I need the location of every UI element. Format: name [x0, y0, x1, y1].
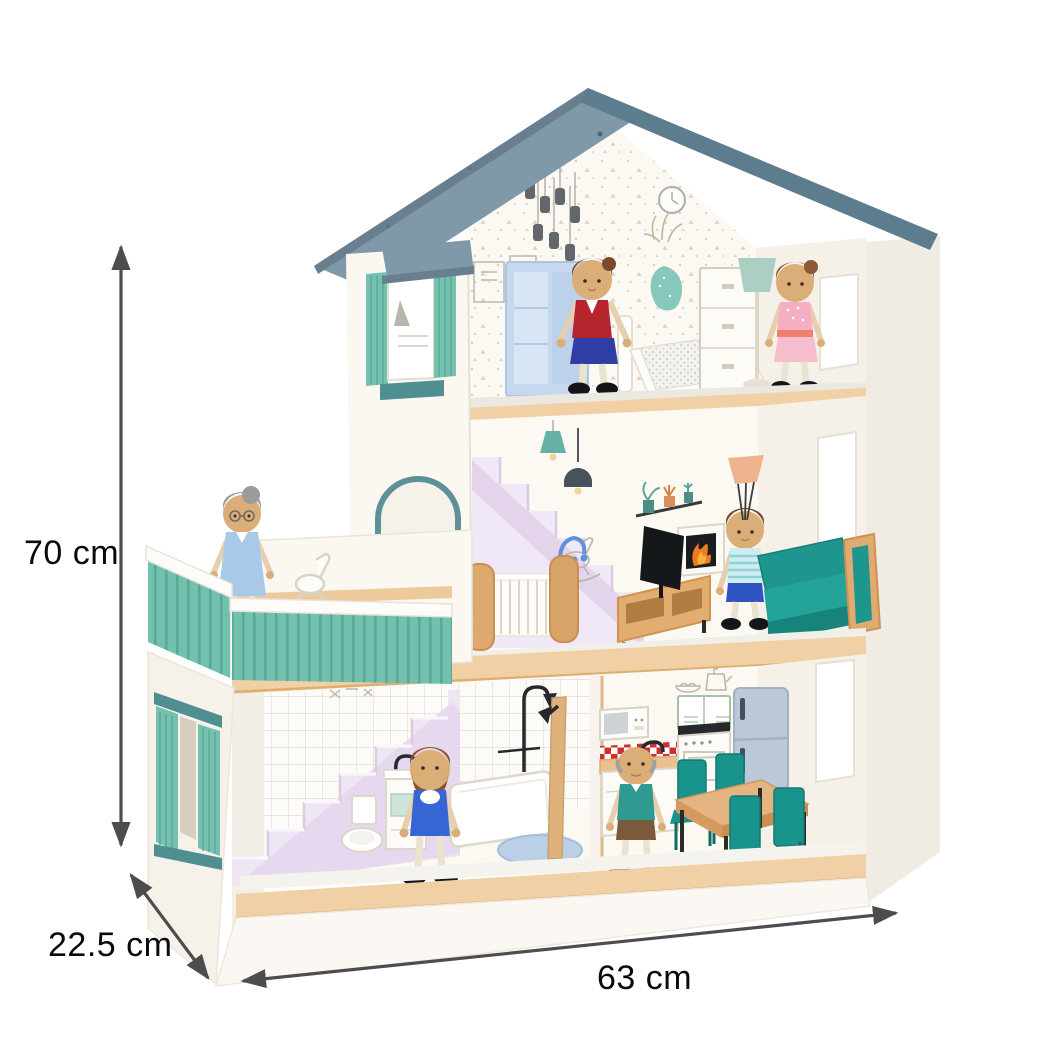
height-label: 70 cm [24, 534, 119, 573]
microwave [600, 707, 648, 740]
width-label: 63 cm [597, 959, 692, 998]
tower [146, 240, 474, 684]
depth-label: 22.5 cm [48, 926, 172, 965]
attic-window [820, 274, 858, 370]
tower-window [366, 269, 456, 400]
dollhouse-illustration [0, 0, 1058, 1058]
fireplace [678, 524, 724, 576]
living-window [818, 432, 856, 556]
ground-floor [216, 654, 870, 986]
wall-clock [659, 187, 685, 213]
product-photo-dollhouse: 70 cm 22.5 cm 63 cm [0, 0, 1058, 1058]
ground-window [816, 660, 854, 782]
